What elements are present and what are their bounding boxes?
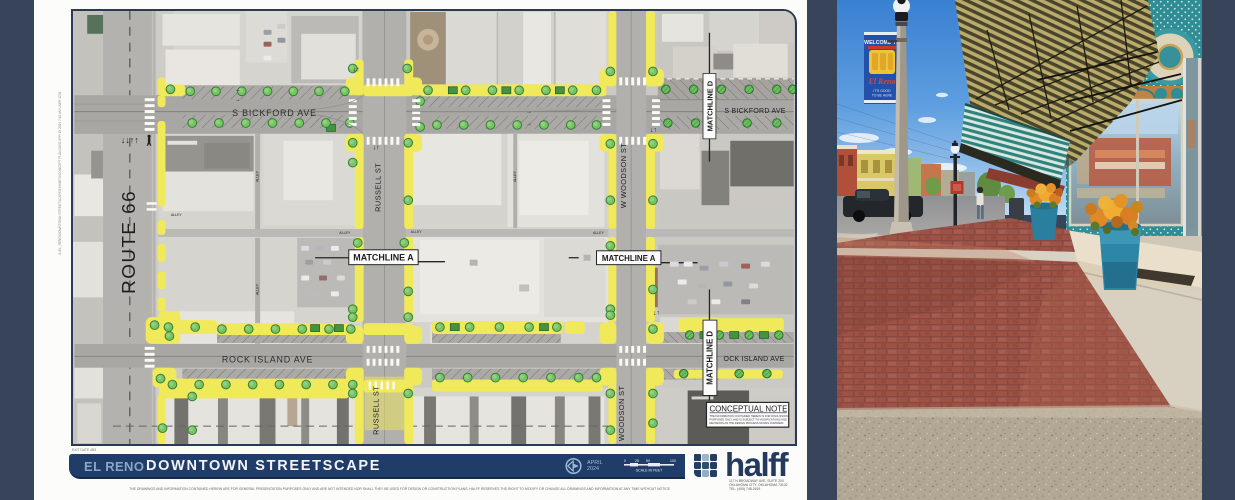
svg-text:25: 25 bbox=[635, 459, 639, 463]
svg-text:0: 0 bbox=[624, 459, 626, 463]
svg-text:50: 50 bbox=[646, 459, 650, 463]
svg-text:SCALE IN FEET: SCALE IN FEET bbox=[636, 469, 663, 473]
svg-text:IT'S GOOD: IT'S GOOD bbox=[873, 89, 891, 93]
svg-text:100: 100 bbox=[670, 459, 676, 463]
svg-text:El Reno: El Reno bbox=[868, 77, 896, 86]
svg-text:TO BE HERE: TO BE HERE bbox=[872, 94, 893, 98]
